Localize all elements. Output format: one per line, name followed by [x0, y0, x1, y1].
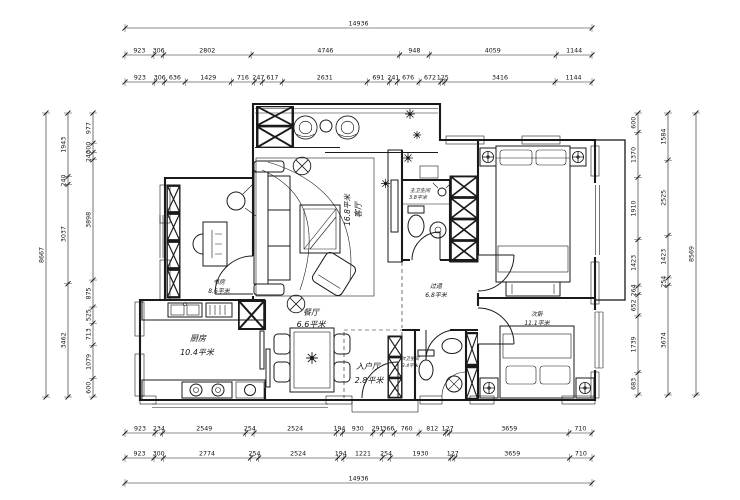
dimension-label: 254: [244, 426, 256, 433]
dimension-label: 710: [574, 426, 586, 433]
dimension-label: 3037: [61, 226, 68, 242]
pillow: [500, 150, 532, 165]
washer-icon: [245, 385, 256, 396]
dimension-label: 930: [352, 426, 364, 433]
tv: [391, 180, 398, 232]
dimension-label: 923: [133, 451, 145, 458]
second-bedroom-label: 次卧: [531, 310, 544, 318]
pillow: [506, 366, 536, 384]
study-area-label: 8.6平米: [208, 287, 231, 295]
study-label: 书房: [213, 278, 226, 286]
sofa-seat: [268, 246, 290, 280]
plant-icon: [413, 131, 421, 139]
blanket: [498, 246, 568, 272]
second-bath-label: 次卫生间: [401, 356, 419, 362]
second-bedroom-room: [480, 326, 594, 398]
plant-icon: [381, 179, 390, 188]
dining-area-label: 6.6平米: [297, 320, 327, 329]
dimension-label: 923: [134, 75, 146, 82]
dimension-label: 1584: [661, 129, 668, 145]
dimension-label: 1930: [412, 451, 428, 458]
kitchen-sliding-door: [260, 331, 270, 387]
plant-icon: [405, 109, 415, 119]
dimension-label: 240: [86, 150, 93, 162]
burner-icon: [212, 384, 224, 396]
dimension-label: 194: [335, 451, 347, 458]
bed: [496, 146, 570, 282]
tv-console: [388, 150, 402, 262]
dimension-label: 306: [153, 48, 165, 55]
flower-icon: [482, 151, 493, 162]
dimension-label: 2525: [661, 190, 668, 206]
floorplan-drawing: 1493692330628024746948405911449233066361…: [0, 0, 740, 500]
rug-pattern: [262, 162, 351, 290]
dimension-label: 923: [134, 426, 146, 433]
floorplan-page: 1493692330628024746948405911449233066361…: [0, 0, 740, 500]
living-room-label: 客厅: [354, 200, 363, 218]
study-room: [167, 183, 256, 298]
dimension-label: 617: [266, 75, 278, 82]
dimension-label: 4746: [317, 48, 333, 55]
dimension-label: 247: [252, 75, 264, 82]
dimension-label: 4059: [485, 48, 501, 55]
burner-icon: [190, 384, 202, 396]
dimension-label: 3462: [61, 332, 68, 348]
dimension-label: 254: [661, 276, 668, 288]
dimension-label: 264: [631, 284, 638, 296]
dimension-label: 125: [437, 75, 449, 82]
balcony-sliding-door: [255, 148, 438, 153]
flower-box: [420, 166, 438, 178]
dimension-label: 1144: [566, 75, 582, 82]
dining-chair: [334, 334, 350, 354]
dimension-label: 600: [86, 382, 93, 394]
dimension-label: 3416: [492, 75, 508, 82]
pillow: [540, 366, 570, 384]
dimension-label: 3659: [504, 451, 520, 458]
dimension-label: 2631: [317, 75, 333, 82]
room-labels: 客厅 16.8平米 餐厅 6.6平米 厨房 10.4平米 入户厅 2.8平米 书…: [180, 187, 551, 385]
basin-icon: [442, 339, 462, 354]
sofa-seat: [268, 176, 290, 210]
dimension-label: 2774: [199, 451, 215, 458]
basin-icon: [430, 222, 446, 238]
balcony-table: [320, 120, 332, 132]
plant-icon: [306, 352, 318, 364]
dimension-label: 127: [447, 451, 459, 458]
dimension-label: 1739: [631, 336, 638, 352]
dimension-label: 3898: [86, 212, 93, 228]
dining-chair: [334, 362, 350, 382]
wardrobe-column: [466, 333, 477, 399]
dimension-label: 636: [169, 75, 181, 82]
dimension-label: 1079: [86, 354, 93, 370]
dining-label: 餐厅: [303, 308, 321, 317]
desk-chair: [193, 234, 203, 254]
corridor-area-label: 6.8平米: [425, 291, 448, 299]
dimension-label: 600: [631, 117, 638, 129]
second-bath-area-label: 3.4平米: [402, 363, 419, 369]
dimension-label: 14936: [348, 476, 368, 483]
fridge: [239, 301, 264, 329]
dimension-label: 8569: [689, 246, 696, 262]
dimension-label: 812: [426, 426, 438, 433]
dimension-label: 127: [442, 426, 454, 433]
balcony-cabinet: [257, 127, 293, 148]
dimension-label: 2524: [290, 451, 306, 458]
kitchen-counter-bottom: [142, 380, 265, 400]
dimension-label: 525: [86, 309, 93, 321]
dimension-label: 3674: [661, 332, 668, 348]
lounge-chair: [227, 192, 245, 210]
toilet-tank: [408, 206, 424, 213]
second-bathroom: [418, 339, 466, 397]
dimension-label: 977: [86, 122, 93, 134]
flower-icon: [572, 151, 583, 162]
entry-area: [388, 336, 402, 398]
dimension-label: 306: [154, 75, 166, 82]
balcony-cabinet: [257, 107, 293, 126]
flower-icon: [579, 382, 590, 393]
dimension-label: 1910: [631, 200, 638, 216]
dimension-label: 875: [86, 288, 93, 300]
dimension-label: 2524: [287, 426, 303, 433]
toilet-icon: [408, 215, 424, 237]
entry-area-label: 2.8平米: [355, 376, 385, 385]
dimension-label: 1370: [631, 147, 638, 163]
dimension-label: 1429: [200, 75, 216, 82]
dimension-label: 713: [86, 328, 93, 340]
dimension-label: 8667: [39, 247, 46, 263]
master-bath-label: 主卫生间: [410, 187, 431, 194]
dimension-label: 683: [631, 378, 638, 390]
sofa-armrest: [254, 161, 284, 172]
floor-lamp-icon: [293, 157, 311, 175]
rattan-chair-icon: [336, 116, 359, 139]
sofa-armrest: [254, 284, 284, 295]
dining-area: [274, 328, 350, 392]
hall-closet: [450, 176, 478, 262]
dimension-label: 1423: [661, 249, 668, 265]
dimension-label: 672: [424, 75, 436, 82]
dimension-label: 234: [153, 426, 165, 433]
shower-head-icon: [438, 188, 446, 196]
living-room-area: 16.8平米: [343, 193, 352, 226]
dimension-label: 1144: [566, 48, 582, 55]
dimension-label: 676: [402, 75, 414, 82]
dimension-label: 710: [575, 451, 587, 458]
dimension-label: 1943: [61, 137, 68, 153]
dimension-label: 194: [333, 426, 345, 433]
master-bath-door: [412, 232, 440, 260]
sofa-seat: [268, 210, 290, 246]
rattan-chair-icon: [294, 116, 317, 139]
second-bedroom-area-label: 11.1平米: [524, 319, 550, 327]
master-bedroom: [480, 146, 586, 296]
dimension-label: 923: [133, 48, 145, 55]
dimension-label: 2549: [196, 426, 212, 433]
dimension-label: 3659: [501, 426, 517, 433]
dimension-label: 254: [249, 451, 261, 458]
master-bath-area-label: 3.8平米: [409, 194, 428, 201]
entry-label: 入户厅: [356, 362, 382, 371]
dimension-label: 241: [387, 75, 399, 82]
dimension-label: 691: [372, 75, 384, 82]
flower-icon: [483, 382, 494, 393]
dimension-label: 2802: [199, 48, 215, 55]
dimension-label: 240: [61, 174, 68, 186]
bed: [500, 326, 574, 398]
dimension-label: 300: [153, 451, 165, 458]
kitchen-label: 厨房: [190, 334, 207, 343]
dimension-label: 366: [382, 426, 394, 433]
dimension-label: 652: [631, 299, 638, 311]
plant-icon: [403, 153, 413, 163]
dimension-label: 254: [380, 451, 392, 458]
dimension-label: 1423: [631, 255, 638, 271]
dining-chair: [274, 334, 290, 354]
dimension-label: 948: [408, 48, 420, 55]
dimension-label: 1221: [355, 451, 371, 458]
toilet-icon: [419, 360, 433, 380]
bed-bench: [506, 282, 560, 296]
dimension-label: 716: [237, 75, 249, 82]
dimension-label: 14936: [348, 21, 368, 28]
dimension-label: 760: [401, 426, 413, 433]
kitchen-area-label: 10.4平米: [180, 348, 215, 357]
dining-chair: [274, 362, 290, 382]
corridor-label: 过道: [430, 282, 443, 290]
doors: [215, 148, 514, 399]
living-room: [254, 150, 402, 313]
rug: [256, 158, 374, 296]
pillow: [536, 150, 566, 165]
